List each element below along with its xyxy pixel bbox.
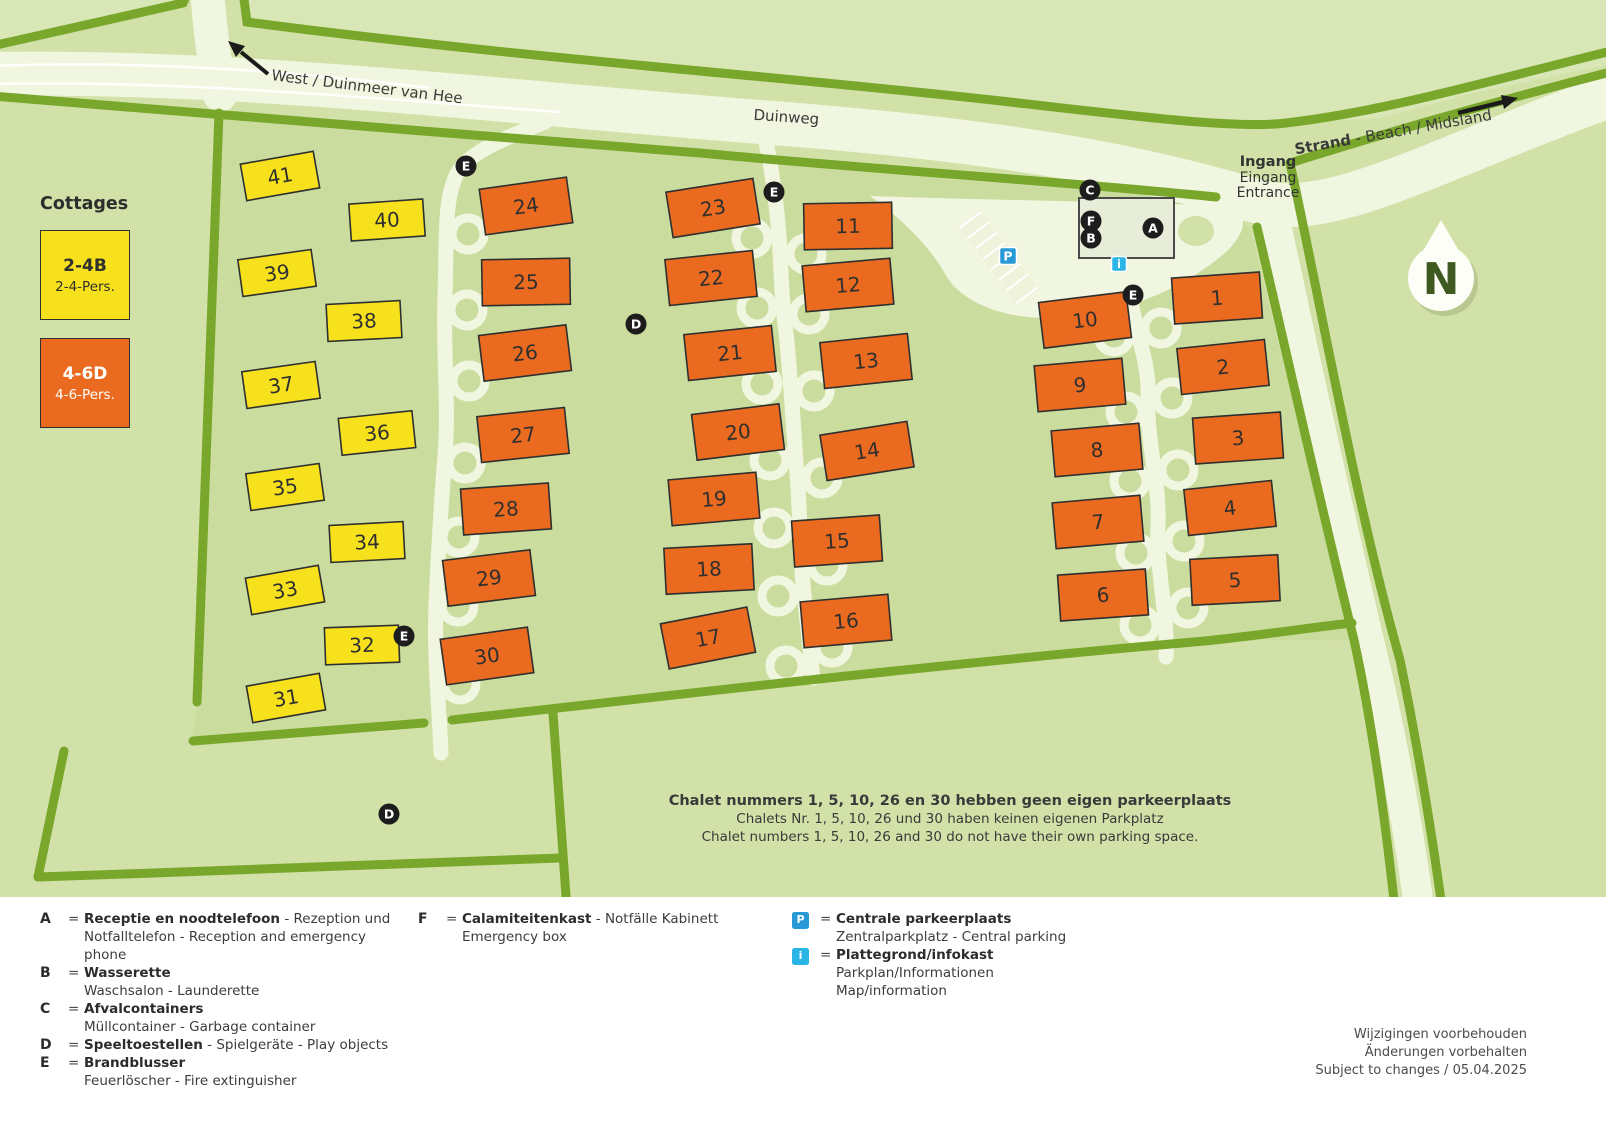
cottages-legend-title: Cottages xyxy=(40,194,160,214)
chalet-number: 28 xyxy=(492,496,519,522)
equals-sign: = xyxy=(820,910,836,946)
chalet-number: 38 xyxy=(351,308,378,333)
chalet-number: 30 xyxy=(473,642,502,669)
legend-key: C xyxy=(40,1000,68,1036)
info-icon: i xyxy=(792,948,809,965)
chalet-number: 14 xyxy=(853,437,882,465)
legend-translation: Parkplan/Informationen xyxy=(836,964,1122,982)
marker-e-icon: E xyxy=(1123,285,1144,306)
chalet-22: 22 xyxy=(665,251,757,306)
legend-item-parking: P = Centrale parkeerplaats Zentralparkpl… xyxy=(792,910,1122,946)
cottage-type-4-6d: 4-6D 4-6-Pers. xyxy=(40,338,130,428)
legend-translation: Zentralparkplatz - Central parking xyxy=(836,928,1122,946)
equals-sign: = xyxy=(68,910,84,964)
chalet-16: 16 xyxy=(800,594,892,647)
legend-item-c: C = Afvalcontainers Müllcontainer - Garb… xyxy=(40,1000,410,1036)
chalet-number: 18 xyxy=(696,556,723,581)
svg-text:P: P xyxy=(1003,249,1012,264)
chalet-32: 32 xyxy=(324,625,399,665)
marker-a-icon: A xyxy=(1143,218,1164,239)
chalet-number: 33 xyxy=(270,576,299,604)
marker-e-icon: E xyxy=(456,156,477,177)
chalet-number: 16 xyxy=(832,608,859,634)
cottage-type-code: 4-6D xyxy=(63,364,108,384)
chalet-4: 4 xyxy=(1184,481,1276,536)
chalet-number: 22 xyxy=(697,265,725,292)
info-marker-icon: i xyxy=(1112,257,1127,272)
chalet-number: 31 xyxy=(271,684,300,712)
chalet-26: 26 xyxy=(479,325,572,381)
chalet-number: 25 xyxy=(513,270,539,294)
chalet-number: 41 xyxy=(265,162,294,190)
chalet-number: 27 xyxy=(509,422,537,449)
chalet-21: 21 xyxy=(684,326,776,381)
chalet-number: 36 xyxy=(363,420,391,447)
legend-item-info: i = Plattegrond/infokast Parkplan/Inform… xyxy=(792,946,1122,1000)
chalet-38: 38 xyxy=(326,301,402,342)
svg-text:C: C xyxy=(1085,183,1094,198)
chalet-19: 19 xyxy=(668,472,760,525)
parking-note-nl: Chalet nummers 1, 5, 10, 26 en 30 hebben… xyxy=(500,792,1400,810)
equals-sign: = xyxy=(820,946,836,1000)
legend-translation: Müllcontainer - Garbage container xyxy=(84,1018,410,1036)
chalet-number: 39 xyxy=(263,259,292,286)
disclaimer-line: Wijzigingen voorbehouden xyxy=(1315,1026,1527,1044)
chalet-36: 36 xyxy=(338,411,415,456)
marker-e-icon: E xyxy=(764,182,785,203)
legend-key: A xyxy=(40,910,68,964)
chalet-number: 10 xyxy=(1071,307,1099,334)
chalet-6: 6 xyxy=(1058,569,1149,621)
chalet-number: 37 xyxy=(267,371,296,398)
chalet-number: 24 xyxy=(512,192,541,219)
chalet-12: 12 xyxy=(802,258,894,311)
chalet-7: 7 xyxy=(1052,495,1144,548)
legend-item-e: E = Brandblusser Feuerlöscher - Fire ext… xyxy=(40,1054,410,1090)
chalet-9: 9 xyxy=(1034,358,1126,411)
legend-translation: Map/information xyxy=(836,982,1122,1000)
chalet-number: 35 xyxy=(271,473,300,500)
chalet-3: 3 xyxy=(1193,412,1284,464)
chalet-number: 4 xyxy=(1222,495,1237,520)
disclaimer-line: Änderungen vorbehalten xyxy=(1315,1044,1527,1062)
chalet-number: 19 xyxy=(700,486,727,512)
entrance-label: Ingang Eingang Entrance xyxy=(1237,154,1300,201)
svg-text:Eingang: Eingang xyxy=(1240,170,1297,186)
legend-key: B xyxy=(40,964,68,1000)
chalet-1: 1 xyxy=(1172,272,1263,324)
chalet-number: 2 xyxy=(1215,354,1230,379)
grass-wedge xyxy=(1178,216,1214,246)
chalet-13: 13 xyxy=(820,334,912,389)
equals-sign: = xyxy=(68,1000,84,1036)
chalet-20: 20 xyxy=(692,404,785,460)
chalet-number: 6 xyxy=(1096,583,1110,608)
marker-b-icon: B xyxy=(1081,228,1102,249)
park-map: 4140393837363534333231242526272829302322… xyxy=(0,0,1606,897)
site-map-page: 4140393837363534333231242526272829302322… xyxy=(0,0,1606,1136)
legend-key: E xyxy=(40,1054,68,1090)
chalet-40: 40 xyxy=(349,199,425,241)
chalet-25: 25 xyxy=(482,258,571,306)
marker-d-icon: D xyxy=(626,314,647,335)
chalet-number: 20 xyxy=(724,419,752,446)
svg-text:D: D xyxy=(384,807,394,822)
chalet-number: 3 xyxy=(1231,426,1245,451)
chalet-number: 5 xyxy=(1228,568,1242,593)
chalet-number: 7 xyxy=(1091,509,1106,534)
chalet-number: 8 xyxy=(1090,437,1105,462)
cottage-type-2-4b: 2-4B 2-4-Pers. xyxy=(40,230,130,320)
equals-sign: = xyxy=(446,910,462,946)
chalet-number: 23 xyxy=(699,194,728,222)
chalet-number: 29 xyxy=(475,565,503,592)
chalet-number: 21 xyxy=(716,340,744,367)
chalet-number: 40 xyxy=(373,207,400,233)
svg-text:E: E xyxy=(462,159,471,174)
chalet-number: 9 xyxy=(1073,372,1088,397)
cottages-legend: Cottages 2-4B 2-4-Pers. 4-6D 4-6-Pers. xyxy=(40,194,160,428)
chalet-8: 8 xyxy=(1051,423,1143,476)
chalet-number: 17 xyxy=(693,624,723,652)
cottage-type-capacity: 2-4-Pers. xyxy=(55,279,115,295)
parking-note-de: Chalets Nr. 1, 5, 10, 26 und 30 haben ke… xyxy=(500,810,1400,828)
chalet-18: 18 xyxy=(664,544,754,595)
marker-c-icon: C xyxy=(1080,180,1101,201)
equals-sign: = xyxy=(68,964,84,1000)
svg-text:E: E xyxy=(400,629,409,644)
chalet-2: 2 xyxy=(1177,340,1269,395)
chalet-number: 26 xyxy=(511,340,539,367)
legend-column-1: A = Receptie en noodtelefoon - Rezeption… xyxy=(40,910,410,1090)
chalet-number: 15 xyxy=(823,528,850,554)
chalet-number: 12 xyxy=(834,272,861,298)
marker-d-icon: D xyxy=(379,804,400,825)
parking-marker-icon: P xyxy=(1000,248,1017,265)
chalet-28: 28 xyxy=(461,483,552,535)
chalet-5: 5 xyxy=(1190,555,1280,606)
chalet-27: 27 xyxy=(477,408,569,463)
parking-icon: P xyxy=(792,912,809,929)
chalet-number: 32 xyxy=(349,633,375,658)
cottage-type-capacity: 4-6-Pers. xyxy=(55,387,115,403)
svg-text:Entrance: Entrance xyxy=(1237,185,1300,201)
parking-note: Chalet nummers 1, 5, 10, 26 en 30 hebben… xyxy=(500,792,1400,846)
svg-text:F: F xyxy=(1087,214,1096,229)
svg-text:N: N xyxy=(1423,254,1460,305)
svg-text:i: i xyxy=(1117,257,1121,271)
legend-item-a: A = Receptie en noodtelefoon - Rezeption… xyxy=(40,910,410,964)
legend-column-3: P = Centrale parkeerplaats Zentralparkpl… xyxy=(792,910,1122,1000)
legend-translation: Emergency box xyxy=(462,928,748,946)
chalet-34: 34 xyxy=(329,522,405,563)
svg-text:D: D xyxy=(631,317,641,332)
disclaimer: Wijzigingen voorbehouden Änderungen vorb… xyxy=(1315,1026,1527,1080)
chalet-number: 1 xyxy=(1210,286,1224,311)
legend-band: A = Receptie en noodtelefoon - Rezeption… xyxy=(0,897,1606,1136)
chalet-number: 34 xyxy=(354,529,381,554)
chalet-number: 11 xyxy=(835,214,861,238)
legend-item-d: D = Speeltoestellen - Spielgeräte - Play… xyxy=(40,1036,410,1054)
svg-text:E: E xyxy=(770,185,779,200)
svg-text:E: E xyxy=(1129,288,1138,303)
legend-item-b: B = Wasserette Waschsalon - Launderette xyxy=(40,964,410,1000)
chalet-15: 15 xyxy=(792,515,883,567)
chalet-11: 11 xyxy=(804,202,893,250)
legend-key: D xyxy=(40,1036,68,1054)
disclaimer-line: Subject to changes / 05.04.2025 xyxy=(1315,1062,1527,1080)
svg-text:A: A xyxy=(1148,221,1158,236)
chalet-number: 13 xyxy=(852,348,880,375)
chalet-29: 29 xyxy=(443,550,536,606)
equals-sign: = xyxy=(68,1036,84,1054)
parking-note-en: Chalet numbers 1, 5, 10, 26 and 30 do no… xyxy=(500,828,1400,846)
legend-translation: Feuerlöscher - Fire extinguisher xyxy=(84,1072,410,1090)
svg-text:B: B xyxy=(1086,231,1096,246)
legend-item-f: F = Calamiteitenkast - Notfälle Kabinett… xyxy=(418,910,748,946)
svg-text:Ingang: Ingang xyxy=(1240,154,1297,170)
legend-translation: Notfalltelefon - Reception and emergency… xyxy=(84,928,410,964)
chalet-10: 10 xyxy=(1039,292,1132,348)
legend-key: F xyxy=(418,910,446,946)
legend-column-2: F = Calamiteitenkast - Notfälle Kabinett… xyxy=(418,910,748,946)
road-north xyxy=(207,0,220,95)
equals-sign: = xyxy=(68,1054,84,1090)
legend-translation: Waschsalon - Launderette xyxy=(84,982,410,1000)
cottage-type-code: 2-4B xyxy=(63,256,107,276)
marker-e-icon: E xyxy=(394,626,415,647)
